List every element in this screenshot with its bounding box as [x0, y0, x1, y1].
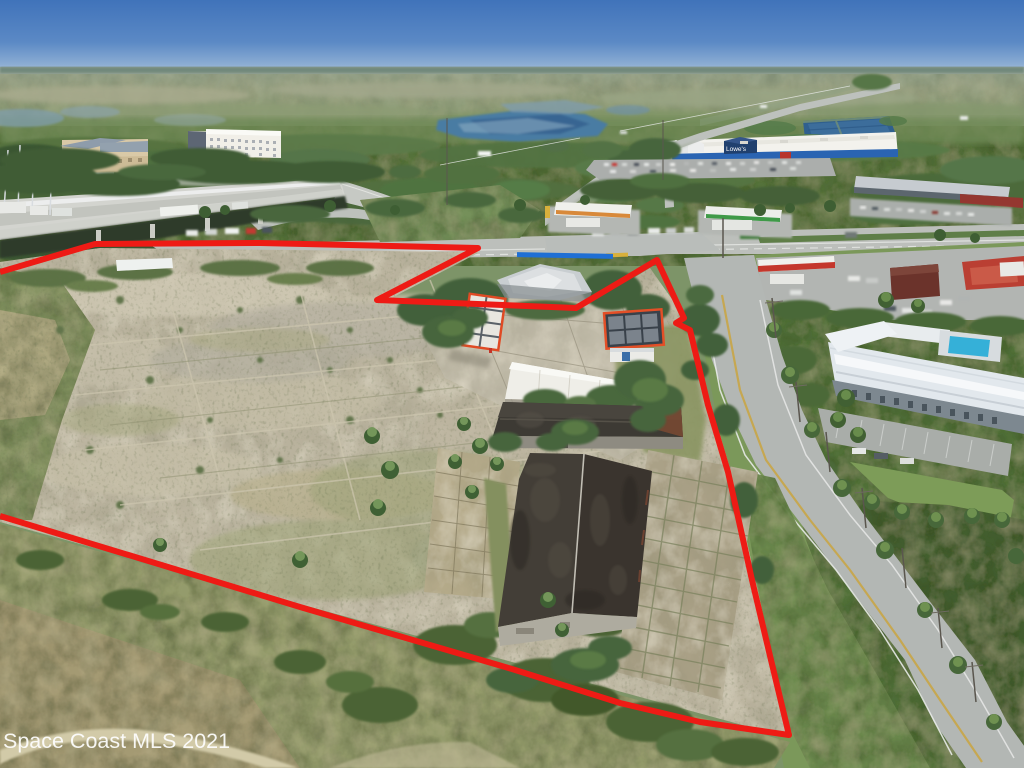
- svg-text:Lowe's: Lowe's: [726, 146, 747, 153]
- svg-text:Space Coast MLS 2021: Space Coast MLS 2021: [3, 729, 230, 753]
